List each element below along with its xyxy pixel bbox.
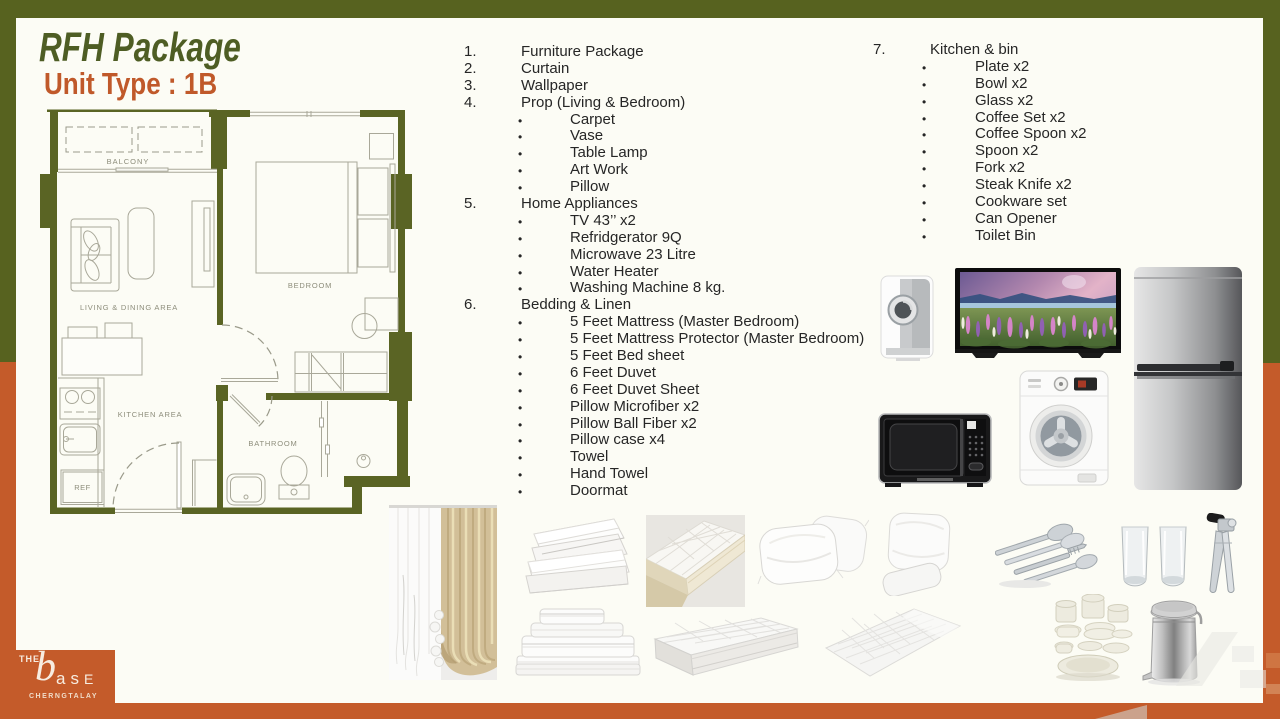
- svg-text:BALCONY: BALCONY: [107, 157, 150, 166]
- svg-text:BATHROOM: BATHROOM: [248, 439, 297, 448]
- svg-text:REF: REF: [74, 483, 91, 492]
- svg-text:BEDROOM: BEDROOM: [288, 281, 332, 290]
- svg-text:KITCHEN AREA: KITCHEN AREA: [118, 410, 183, 419]
- svg-text:LIVING & DINING AREA: LIVING & DINING AREA: [80, 303, 178, 312]
